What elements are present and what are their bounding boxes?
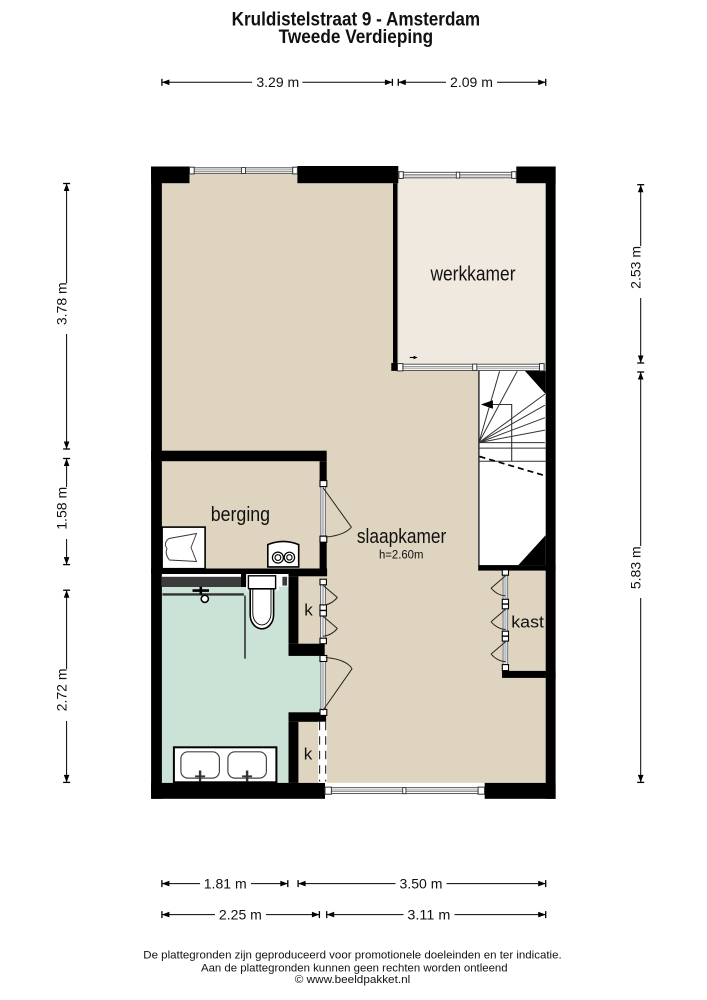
svg-text:berging: berging [211,503,270,526]
svg-text:werkkamer: werkkamer [430,262,516,285]
svg-text:1.81 m: 1.81 m [204,876,247,892]
svg-text:2.72 m: 2.72 m [54,668,70,711]
svg-text:Aan de plattegronden kunnen ge: Aan de plattegronden kunnen geen rechten… [201,962,508,974]
svg-text:k: k [304,601,313,620]
svg-text:h=2.60m: h=2.60m [379,549,424,561]
svg-text:3.78 m: 3.78 m [54,282,70,325]
svg-text:2.25 m: 2.25 m [219,907,262,923]
svg-text:Tweede Verdieping: Tweede Verdieping [279,27,434,48]
svg-text:kast: kast [511,613,544,631]
svg-text:1.58 m: 1.58 m [54,487,70,530]
svg-text:© www.beeldpakket.nl: © www.beeldpakket.nl [295,974,410,986]
svg-text:5.83 m: 5.83 m [628,546,644,589]
svg-text:3.11 m: 3.11 m [407,907,450,923]
svg-text:De plattegronden zijn geproduc: De plattegronden zijn geproduceerd voor … [143,950,561,962]
svg-text:slaapkamer: slaapkamer [357,525,447,548]
svg-text:3.50 m: 3.50 m [400,876,443,892]
svg-text:3.29 m: 3.29 m [256,74,299,90]
svg-text:2.53 m: 2.53 m [628,246,644,289]
svg-text:k: k [304,745,313,764]
svg-text:2.09 m: 2.09 m [450,74,493,90]
